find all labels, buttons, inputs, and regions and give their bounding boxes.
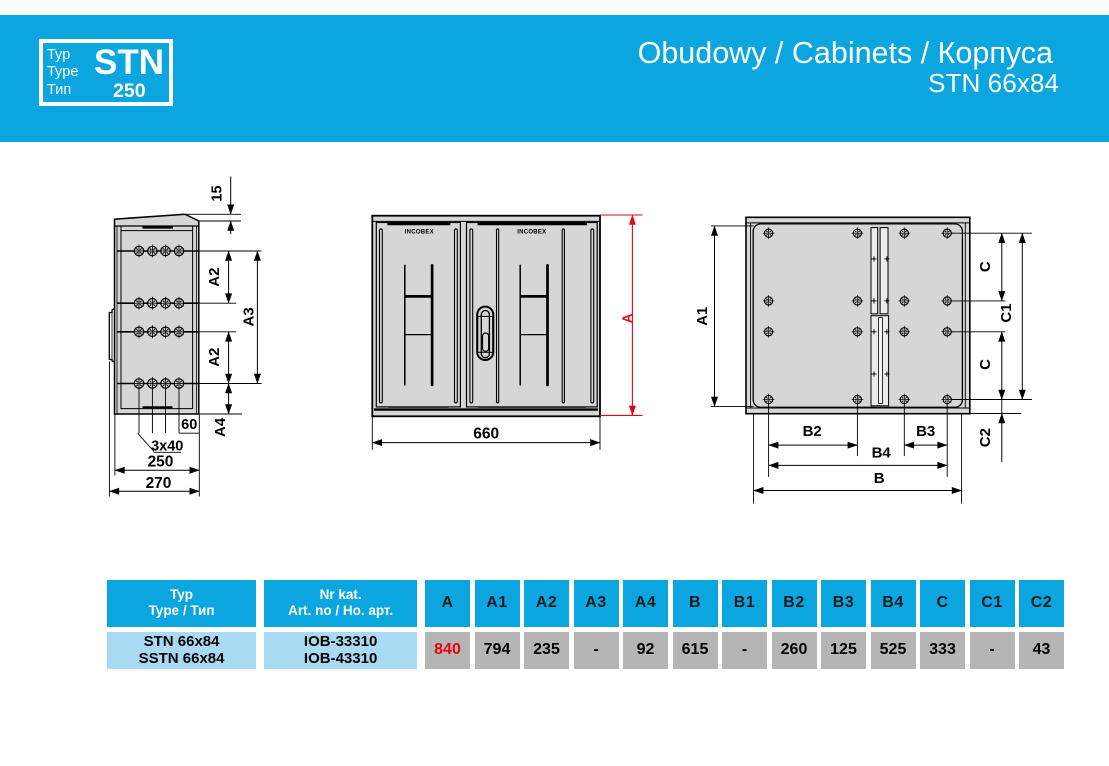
svg-text:C: C: [977, 359, 994, 370]
svg-text:A1: A1: [694, 307, 711, 326]
svg-text:B2: B2: [803, 423, 822, 440]
svg-text:60: 60: [181, 417, 197, 433]
svg-text:B: B: [874, 470, 885, 487]
svg-text:A2: A2: [206, 268, 223, 287]
svg-text:3x40: 3x40: [151, 438, 183, 454]
svg-text:A3: A3: [240, 307, 257, 326]
svg-text:INCOBEX: INCOBEX: [405, 230, 434, 236]
svg-text:A2: A2: [206, 348, 223, 367]
svg-text:15: 15: [210, 185, 226, 201]
svg-text:C1: C1: [998, 303, 1015, 322]
svg-text:B3: B3: [916, 423, 935, 440]
svg-text:660: 660: [473, 426, 499, 443]
svg-text:270: 270: [146, 475, 172, 492]
svg-text:C: C: [977, 261, 994, 272]
svg-text:B4: B4: [872, 444, 892, 461]
svg-text:A4: A4: [212, 417, 229, 437]
svg-text:250: 250: [148, 454, 174, 471]
svg-text:C2: C2: [977, 428, 994, 447]
svg-text:INCOBEX: INCOBEX: [517, 230, 546, 236]
svg-text:A: A: [620, 313, 635, 323]
